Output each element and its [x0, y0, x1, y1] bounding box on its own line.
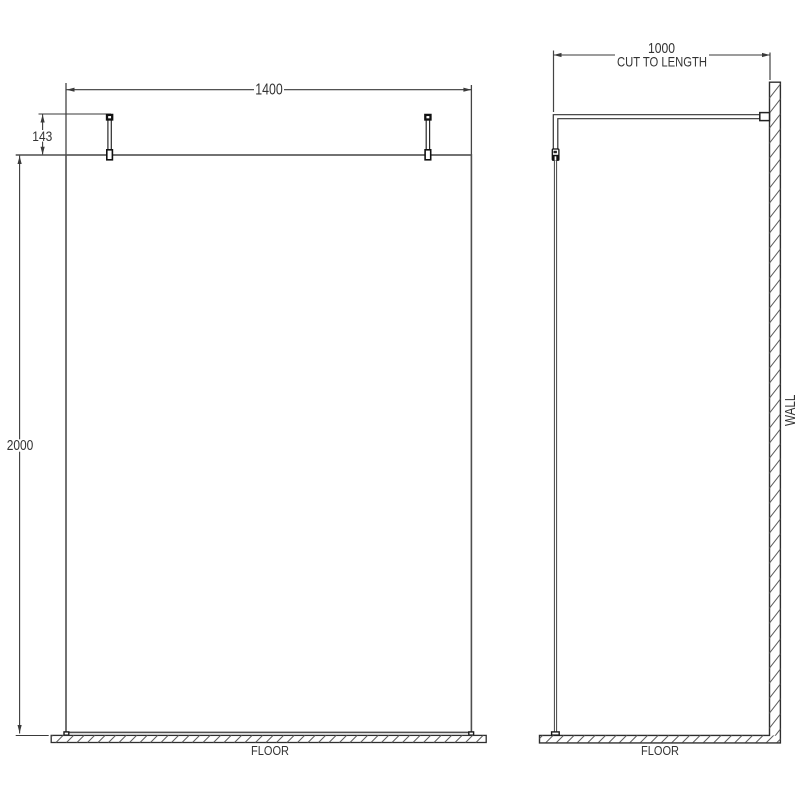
svg-text:FLOOR: FLOOR	[641, 743, 679, 758]
svg-text:FLOOR: FLOOR	[251, 743, 289, 758]
svg-text:WALL: WALL	[783, 395, 799, 426]
svg-text:CUT TO LENGTH: CUT TO LENGTH	[617, 55, 707, 70]
svg-text:2000: 2000	[7, 437, 34, 454]
svg-text:143: 143	[32, 128, 52, 144]
svg-text:1400: 1400	[255, 82, 283, 99]
